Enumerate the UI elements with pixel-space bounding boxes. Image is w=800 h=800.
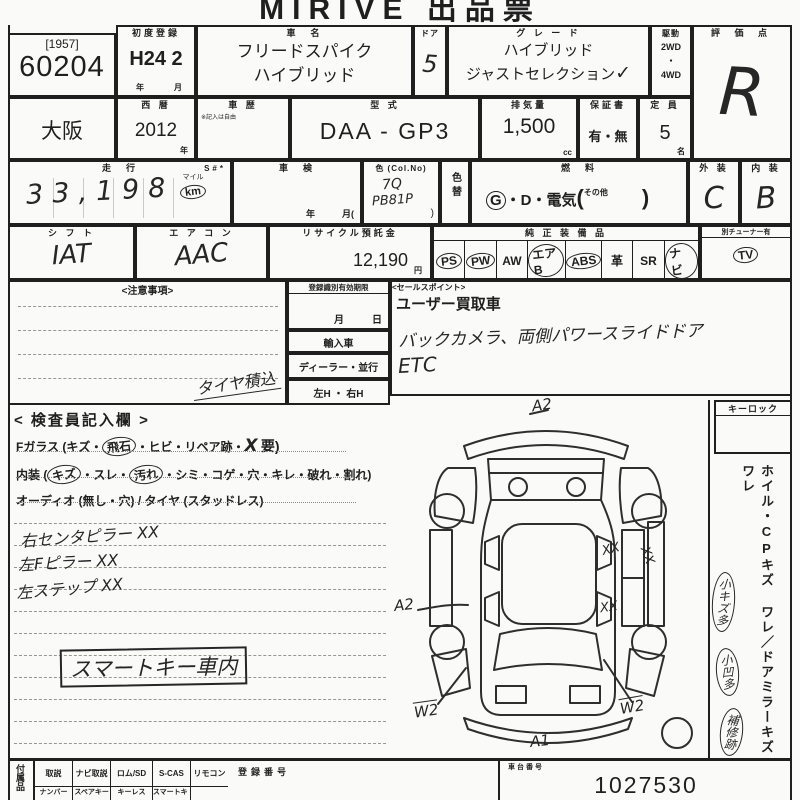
recycle-deposit-cell: リサイクル預託金 12,190 円: [268, 225, 432, 280]
shift-cell: シ フ ト IAT: [8, 225, 135, 280]
color-change-cell: 色替: [440, 160, 470, 225]
key-lock-cell: キーロック: [714, 400, 792, 454]
reg-day-label: 日: [372, 315, 382, 326]
accessory-item: ナンバー: [35, 787, 73, 800]
grade-cell: グ レ ー ド ハイブリッド ジャストセレクション✓: [447, 25, 650, 97]
shaken-cell: 車 検 年 月(: [232, 160, 362, 225]
capacity-label: 定 員: [640, 99, 690, 112]
lot-number: 60204: [10, 51, 114, 84]
ruled-line: [14, 633, 386, 634]
sales-printed: ユーザー買取車: [396, 293, 790, 314]
sales-hand-line2: ETC: [397, 352, 437, 378]
fuel-cell: 燃 料 G・D・電気(その他): [470, 160, 688, 225]
exterior-label: 外 装: [690, 162, 738, 175]
warranty-label: 保証書: [580, 99, 636, 112]
vehicle-history-cell: 車 歴 ※記入は自由: [196, 97, 290, 160]
shaken-label: 車 検: [234, 162, 360, 175]
accessory-item: スマートキー: [153, 787, 191, 800]
shaken-units: 年 月(: [306, 207, 354, 220]
drive-2wd: 2WD: [652, 40, 690, 54]
diagram-front-label: A1: [529, 731, 551, 751]
fuel-other-label: その他: [584, 188, 608, 197]
dealer-label: ディーラー・並行: [289, 359, 388, 374]
handle-label: 左H ・ 右H: [289, 385, 388, 400]
displacement-cell: 排気量 1,500 cc: [480, 97, 578, 160]
sales-label: <セールスポイント>: [392, 282, 790, 293]
accessories-label: 付属品: [14, 764, 27, 791]
tv-tuner-header: 別チューナー有: [702, 227, 790, 238]
prefecture-cell: 大阪: [8, 97, 116, 160]
door-label: ドア: [415, 27, 445, 40]
diagram-side-label: A2: [393, 595, 415, 615]
equipment-item: ナビ: [665, 241, 698, 280]
grade-line1: ハイブリッド: [449, 40, 648, 62]
mileage-unit: km: [179, 184, 206, 201]
fuel-gasoline: G: [486, 191, 506, 210]
first-reg-month-unit: 月: [174, 82, 182, 93]
reg-validity-label: 登録識別有効期限: [289, 282, 388, 294]
caution-hand-note: タイヤ積込: [191, 364, 281, 401]
factory-equipment-cell: 純 正 装 備 品 PS PW AW エアB ABS 革 SR ナビ: [432, 225, 700, 280]
first-registration-value: H24 2: [118, 48, 194, 71]
accessory-header: リモコン: [191, 761, 228, 786]
equipment-item: 革: [602, 241, 633, 280]
equipment-label: 純 正 装 備 品: [434, 227, 698, 240]
west-year-unit: 年: [180, 145, 188, 156]
equipment-item: PW: [465, 241, 496, 280]
capacity-unit: 名: [677, 146, 685, 157]
smart-key-note: スマートキー車内: [60, 646, 248, 687]
caution-label: <注意事項>: [10, 282, 285, 297]
ruled-line: [16, 477, 366, 478]
mileage-label: 走 行: [102, 163, 138, 173]
first-registration-cell: 初度登録 H24 2 年 月: [116, 25, 196, 97]
key-lock-label: キーロック: [716, 402, 790, 416]
accessory-item-empty: [191, 787, 228, 800]
capacity-cell: 定 員 5 名: [638, 97, 692, 160]
lot-number-cell: [1957] 60204: [8, 33, 116, 97]
reg-month-label: 月: [334, 315, 344, 326]
accessory-item: スペアキー: [73, 787, 111, 800]
color-code: 7Q: [381, 173, 438, 194]
warranty-cell: 保証書 有・無: [578, 97, 638, 160]
tv-code: TV: [733, 246, 760, 265]
car-damage-diagram: A2 A2 W2 W2 A1 XX XX XX: [388, 402, 708, 758]
equipment-item: SR: [633, 241, 664, 280]
grade-line2: ジャストセレクション✓: [449, 62, 648, 86]
chassis-number: 1027530: [500, 772, 792, 799]
interior-label: 内 装: [742, 162, 790, 175]
accessories-vertical-label-cell: 付属品: [8, 761, 35, 800]
equipment-item: PS: [434, 241, 465, 280]
interior-grade-cell: 内 装 B: [740, 160, 792, 225]
door-value: 5: [414, 49, 446, 79]
fuel-close-paren: ): [642, 185, 649, 210]
page-title: MIRIVE 出品票: [0, 0, 800, 28]
ruled-line: [14, 743, 386, 744]
ruled-line: [14, 611, 386, 612]
aircon-value: AAC: [136, 234, 267, 275]
west-year-label: 西 暦: [118, 99, 194, 112]
color-cell: 色 (Col.No) 7Q PB81P ): [362, 160, 440, 225]
ruled-line: [14, 699, 386, 700]
mileage-mile-label: マイル: [180, 172, 206, 182]
ruled-line: [14, 721, 386, 722]
warranty-value: 有・無: [580, 126, 636, 145]
equipment-item: エアB: [528, 241, 565, 280]
ruled-line: [18, 306, 278, 307]
first-reg-year-unit: 年: [136, 82, 144, 93]
capacity-value: 5: [640, 122, 690, 145]
equipment-item: ABS: [566, 241, 602, 280]
dealer-parallel-cell: ディーラー・並行: [287, 353, 390, 379]
evaluation-score-cell: 評 価 点 R: [692, 25, 792, 160]
accessory-header: 取説: [35, 761, 73, 786]
displacement-hdr: 排気量: [482, 99, 576, 112]
accessories-table: 取説 ナビ取説 ロム/SD S-CAS リモコン ナンバー スペアキー キーレス…: [35, 761, 228, 800]
accessory-item: キーレス: [111, 787, 153, 800]
score-label: 評 価 点: [694, 27, 790, 40]
equipment-item: AW: [497, 241, 528, 280]
exterior-grade-cell: 外 装 C: [688, 160, 740, 225]
registration-validity-cell: 登録識別有効期限 月日: [287, 280, 390, 330]
car-name-line1: フリードスパイク: [198, 40, 411, 64]
handle-position-cell: 左H ・ 右H: [287, 379, 390, 405]
ruled-line: [18, 354, 278, 355]
caution-notes-cell: <注意事項> タイヤ積込: [8, 280, 287, 405]
evaluation-score: R: [692, 52, 792, 134]
registration-number-label: 登録番号: [238, 765, 290, 778]
accessory-header: S-CAS: [153, 761, 191, 786]
recycle-value: 12,190: [270, 250, 408, 271]
model-code: DAA - GP3: [292, 118, 478, 145]
color-number: PB81P: [372, 192, 414, 210]
recycle-label: リサイクル預託金: [270, 227, 430, 240]
model-code-cell: 型 式 DAA - GP3: [290, 97, 480, 160]
grade-label: グ レ ー ド: [449, 27, 648, 40]
displacement-unit: cc: [563, 148, 572, 157]
color-paren: ): [431, 208, 434, 219]
ruled-line: [16, 502, 356, 503]
damage-mark: XX: [599, 599, 619, 616]
accessory-header: ナビ取説: [73, 761, 111, 786]
shift-value: IAT: [9, 236, 134, 275]
diagram-wheel-left-label: W2: [413, 700, 440, 721]
model-year-west: 2012: [118, 120, 194, 142]
interior-grade: B: [741, 180, 791, 217]
ruled-line: [18, 330, 278, 331]
fuel-open-paren: (: [577, 185, 584, 210]
ruled-line: [16, 451, 346, 452]
sidebar-divider: [708, 400, 710, 758]
history-label: 車 歴: [198, 99, 288, 112]
fuel-options: ・D・電気: [506, 192, 577, 209]
mileage-s-label: S#*: [204, 162, 226, 175]
fuel-label: 燃 料: [472, 162, 686, 175]
chassis-number-cell: 車台番号 1027530: [498, 758, 792, 800]
recycle-unit: 円: [414, 265, 422, 276]
aircon-cell: エ ア コ ン AAC: [135, 225, 268, 280]
model-year-west-cell: 西 暦 2012 年: [116, 97, 196, 160]
hand-note-3: 左ステップ XX: [15, 570, 124, 603]
drive-4wd: 4WD: [652, 68, 690, 82]
displacement-value: 1,500: [482, 115, 576, 139]
mileage-cell: 走 行 S#* 33,198 マイル km: [8, 160, 232, 225]
tv-tuner-cell: 別チューナー有 TV: [700, 225, 792, 280]
door-cell: ドア 5: [413, 25, 447, 97]
model-label: 型 式: [292, 99, 478, 112]
prefecture: 大阪: [10, 115, 114, 145]
import-car-cell: 輸入車: [287, 330, 390, 353]
car-name-line2: ハイブリッド: [198, 64, 411, 88]
drive-separator: ・: [652, 54, 690, 68]
import-label: 輸入車: [289, 335, 388, 350]
sales-points-cell: <セールスポイント> ユーザー買取車 バックカメラ、両側パワースライドドア ET…: [390, 280, 792, 396]
drive-type-cell: 駆動 2WD ・ 4WD: [650, 25, 692, 97]
chassis-number-label: 車台番号: [508, 762, 792, 772]
diagram-rear-label: A2: [531, 395, 553, 416]
auction-sheet: MIRIVE 出品票 [1957] 60204 初度登録 H24 2 年 月 車…: [0, 0, 800, 800]
car-name-label: 車 名: [198, 27, 411, 40]
exterior-grade: C: [689, 179, 739, 217]
accessory-header: ロム/SD: [111, 761, 153, 786]
grade-checkmark: ✓: [615, 62, 631, 84]
color-change-label: 色替: [448, 172, 463, 216]
first-registration-label: 初度登録: [118, 27, 194, 40]
car-name-cell: 車 名 フリードスパイク ハイブリッド: [196, 25, 413, 97]
sales-hand-line1: バックカメラ、両側パワースライドドア: [398, 313, 791, 352]
drive-label: 駆動: [652, 27, 690, 40]
lot-ref: [1957]: [10, 37, 114, 51]
history-note: ※記入は自由: [201, 112, 288, 121]
wheel-damage-note: ホイル・CPキズ ワレ／ドアミラーキズ ワレ: [738, 464, 776, 760]
